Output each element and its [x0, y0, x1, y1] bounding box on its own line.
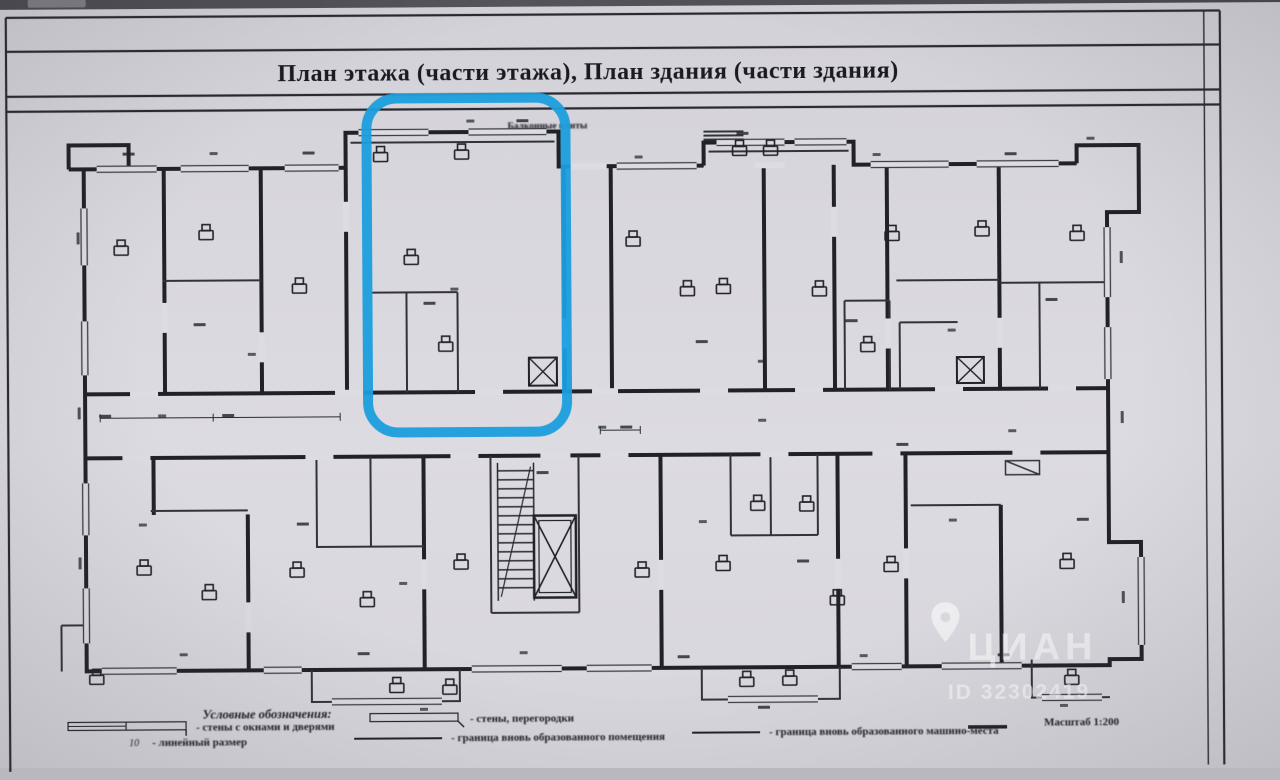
drawing-title: План этажа (части этажа), План здания (ч…: [277, 57, 898, 87]
partition-wall-symbol: [370, 713, 464, 728]
floor-plan-drawing: План этажа (части этажа), План здания (ч…: [0, 0, 1280, 772]
legend-wall-window-label: - стены с окнами и дверями: [196, 721, 335, 734]
paper-sheet: План этажа (части этажа), План здания (ч…: [0, 0, 1280, 780]
watermark-brand: ЦИАН: [967, 626, 1097, 669]
scale-label: Масштаб 1:200: [1044, 716, 1120, 728]
map-pin-icon: [931, 602, 959, 642]
legend-dimension-example: 10: [129, 738, 139, 749]
selected-unit-highlight: [366, 97, 567, 432]
cian-watermark: ЦИАН ID 32302419: [931, 601, 1098, 704]
scanned-floorplan-photo: План этажа (части этажа), План здания (ч…: [0, 0, 1280, 768]
legend-boundary-label: - граница вновь образованного помещения: [451, 731, 665, 744]
exterior-and-load-bearing-walls: [68, 128, 1141, 672]
ventilation-shaft: [529, 355, 984, 386]
door-openings: [121, 163, 1078, 633]
legend: Условные обозначения: - стены с окнами и…: [68, 702, 1120, 749]
elevator-shaft: [534, 515, 577, 597]
legend-partition-label: - стены, перегородки: [470, 712, 575, 725]
wall-with-window-symbol: [68, 722, 186, 737]
legend-heading: Условные обозначения:: [202, 707, 331, 722]
watermark-listing-id: ID 32302419: [948, 680, 1090, 704]
boundary-line-symbol: [354, 738, 442, 739]
legend-dimension-label: - линейный размер: [152, 736, 247, 749]
dimension-marks: [76, 116, 1126, 713]
staircase: [497, 463, 534, 601]
legend-parking-boundary-label: - граница вновь образованного машино-мес…: [769, 725, 999, 738]
